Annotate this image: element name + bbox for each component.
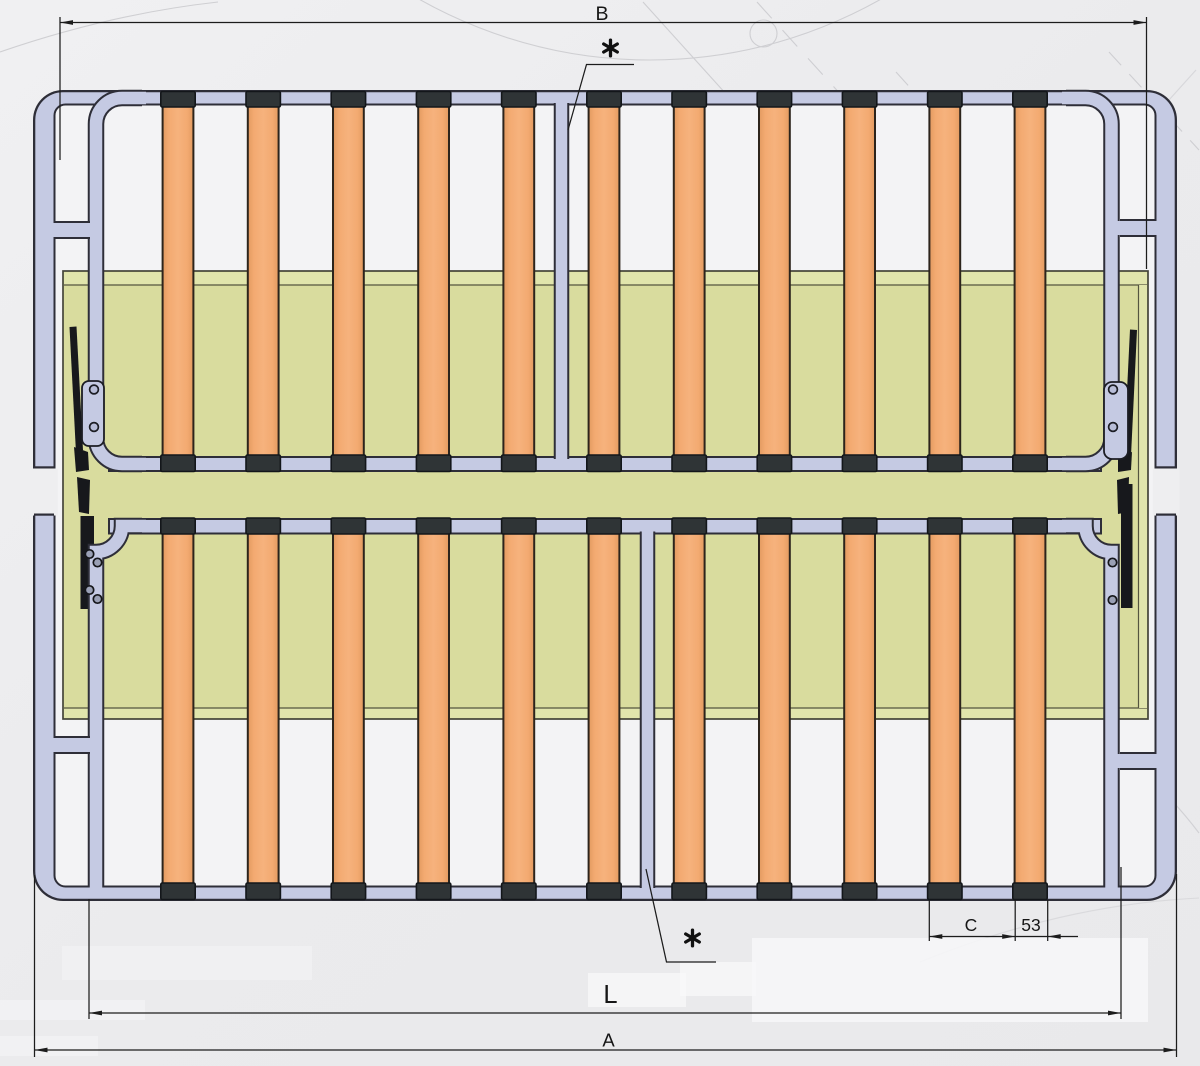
svg-text:C: C — [965, 915, 978, 935]
svg-text:53: 53 — [1021, 915, 1040, 935]
svg-text:B: B — [595, 3, 608, 25]
svg-text:L: L — [603, 981, 617, 1009]
svg-text:A: A — [602, 1030, 615, 1051]
